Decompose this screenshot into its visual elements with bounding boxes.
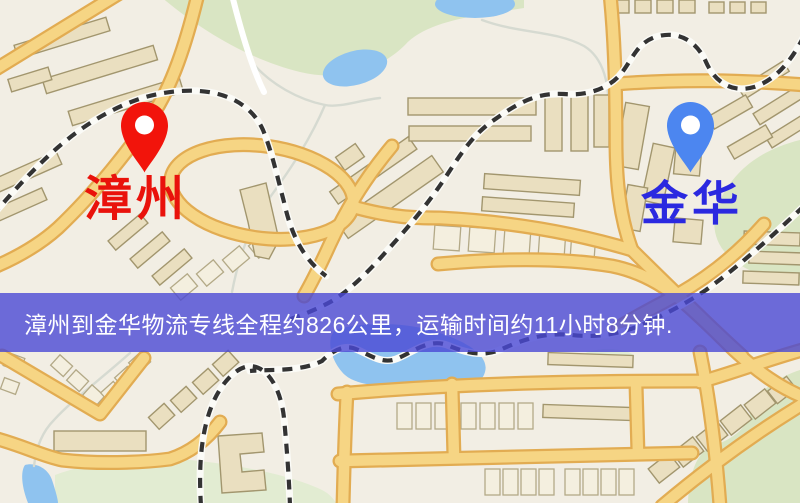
route-info-text: 漳州到金华物流专线全程约826公里，运输时间约11小时8分钟. — [24, 306, 673, 340]
pin-hole — [135, 116, 154, 135]
pin-body — [121, 102, 168, 173]
destination-city-label: 金华 — [641, 180, 743, 227]
origin-city-label: 漳州 — [84, 176, 188, 224]
origin-pin[interactable] — [121, 102, 168, 173]
pin-hole — [681, 116, 700, 135]
location-pin-icon — [667, 102, 714, 173]
map-background — [0, 0, 800, 503]
destination-pin[interactable] — [667, 102, 714, 173]
route-map-view: 漳州到金华物流专线全程约826公里，运输时间约11小时8分钟. 漳州 金华 — [0, 0, 800, 503]
location-pin-icon — [121, 102, 168, 173]
pin-body — [667, 102, 714, 173]
route-info-banner: 漳州到金华物流专线全程约826公里，运输时间约11小时8分钟. — [0, 293, 800, 352]
